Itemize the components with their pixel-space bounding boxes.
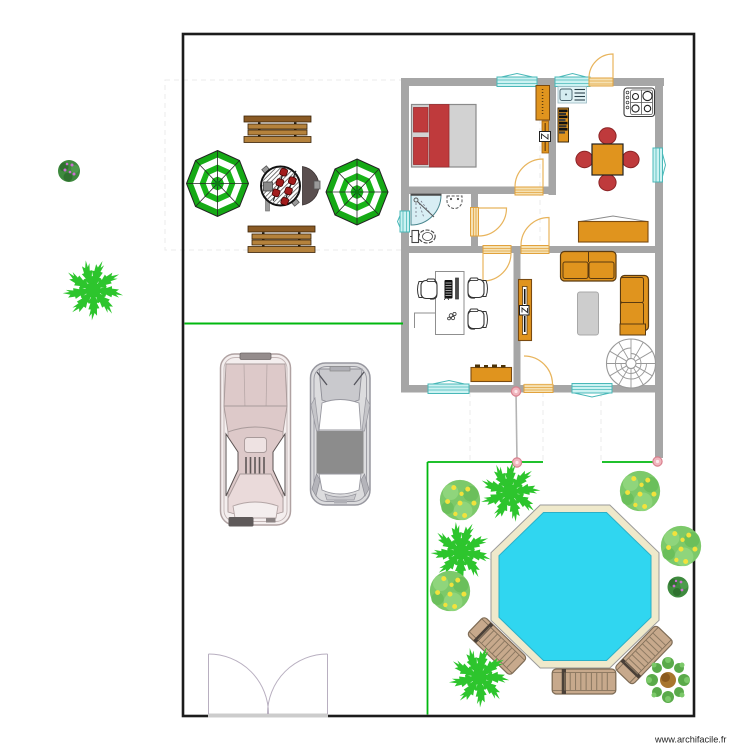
svg-text:www.archifacile.fr: www.archifacile.fr	[654, 735, 726, 745]
